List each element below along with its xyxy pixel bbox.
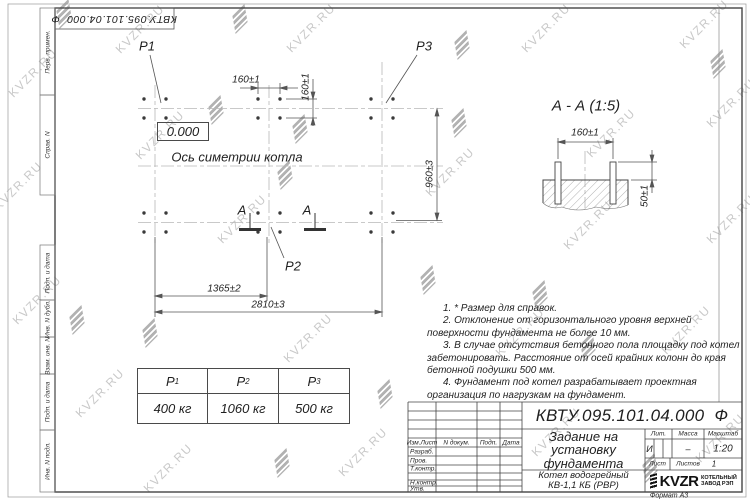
tb-document-title-text: Задание на установку фундамента xyxy=(536,430,631,471)
margin-label-podp-data-1: Подп. и дата xyxy=(44,252,51,293)
load-table-header-p1: P1 xyxy=(138,369,208,394)
level-mark-box: 0.000 xyxy=(157,122,209,141)
p3-symbol: P xyxy=(307,374,316,389)
dim-bolt-spacing-h: 160±1 xyxy=(232,75,260,86)
tb-mass-value: – xyxy=(685,444,690,454)
load-table-value-p3: 500 кг xyxy=(279,394,349,423)
margin-label-inv-dubl: Инв. N дубл. xyxy=(44,300,51,338)
dim-total-length: 2810±3 xyxy=(251,300,284,311)
load-table-value-p1: 400 кг xyxy=(138,394,208,423)
dim-foundation-width: 960±3 xyxy=(425,160,436,188)
tb-lit-label: Лит. xyxy=(651,431,666,438)
title-block-designation: КВТУ.095.101.04.000 Ф xyxy=(536,406,729,426)
format-label: Формат А3 xyxy=(650,493,688,500)
p1-sub: 1 xyxy=(175,377,179,386)
dim-left-to-center: 1365±2 xyxy=(207,284,240,295)
p2-sub: 2 xyxy=(245,377,249,386)
tb-scale-value: 1:20 xyxy=(713,443,732,454)
tb-product-name: Котел водогрейный КВ-1,1 КБ (РВР) xyxy=(522,470,645,492)
load-point-p2-label: P2 xyxy=(285,259,301,274)
load-point-p1-label: P1 xyxy=(139,39,155,54)
p3-sub: 3 xyxy=(316,377,320,386)
section-view-block xyxy=(543,162,628,210)
section-mark-letter-right: А xyxy=(303,203,312,218)
section-view-title: А - А (1:5) xyxy=(552,98,620,115)
kvzr-caption-line2: ЗАВОД РЭП xyxy=(701,481,737,487)
p2-symbol: P xyxy=(236,374,245,389)
tb-document-title: Задание на установку фундамента xyxy=(522,430,645,470)
load-table: P1 P2 P3 400 кг 1060 кг 500 кг xyxy=(137,368,350,424)
note-3: 3. В случае отсутствия бетонного пола пл… xyxy=(427,340,741,377)
section-cut-marks xyxy=(239,213,326,230)
tb-col-n-dokum: N докум. xyxy=(443,439,469,446)
anchor-bolt-dots xyxy=(142,97,394,233)
tb-sheet-label: Лист xyxy=(649,461,666,468)
tb-sheets-value: 1 xyxy=(712,460,716,469)
tb-product-name-text: Котел водогрейный КВ-1,1 КБ (РВР) xyxy=(531,471,636,491)
tb-col-podp: Подп. xyxy=(480,439,497,446)
section-mark-letter-left: А xyxy=(238,203,247,218)
tb-row-utv: Утв. xyxy=(410,486,425,493)
margin-label-podp-data-2: Подп. и дата xyxy=(44,382,51,423)
tb-scale-label: Масштаб xyxy=(708,431,738,438)
note-1: 1. * Размер для справок. xyxy=(427,303,741,315)
kvzr-logo-caption: КОТЕЛЬНЫЙ ЗАВОД РЭП xyxy=(701,475,737,487)
notes-block: 1. * Размер для справок. 2. Отклонение о… xyxy=(427,303,741,402)
tb-sheets-label: Листов xyxy=(676,461,700,468)
margin-label-vzam-inv: Взам. инв. N xyxy=(44,337,51,375)
section-dim-bolt-spacing: 160±1 xyxy=(571,128,599,139)
tb-mass-label: Масса xyxy=(678,431,697,438)
load-table-header-p2: P2 xyxy=(208,369,279,394)
note-4: 4. Фундамент под котел разрабатывает про… xyxy=(427,377,741,402)
tb-col-izm-list: Изм.Лист xyxy=(407,439,438,446)
tb-col-data: Дата xyxy=(502,439,519,446)
note-2: 2. Отклонение от горизонтального уровня … xyxy=(427,315,741,340)
section-dim-bolt-height: 50±1 xyxy=(640,185,651,207)
kvzr-logo-icon xyxy=(650,473,657,490)
tb-lit-value: И xyxy=(646,444,652,454)
margin-label-perv-primen: Перв. примен. xyxy=(44,30,51,73)
load-table-header-p3: P3 xyxy=(279,369,349,394)
margin-label-sprav-n: Справ. N xyxy=(44,131,51,158)
kvzr-logo-text: KVZR xyxy=(660,473,699,490)
drawing-sheet: KVZR.RUKVZR.RUKVZR.RUKVZR.RUKVZR.RUKVZR.… xyxy=(0,0,750,500)
tb-row-tkontr: Т.контр. xyxy=(410,466,436,473)
level-mark-value: 0.000 xyxy=(167,124,200,139)
load-table-value-p2: 1060 кг xyxy=(208,394,279,423)
tb-manufacturer-logo: KVZR КОТЕЛЬНЫЙ ЗАВОД РЭП xyxy=(645,470,742,492)
tb-row-razrab: Разраб. xyxy=(410,448,434,455)
load-point-p3-label: P3 xyxy=(416,39,432,54)
top-inverted-stamp: КВТУ.095.101.04.000 Ф xyxy=(51,13,177,25)
boiler-symmetry-axis-label: Ось симетрии котла xyxy=(171,149,302,164)
margin-label-inv-podl: Инв. N подл. xyxy=(44,442,51,480)
tb-row-prov: Пров. xyxy=(410,457,427,464)
p1-symbol: P xyxy=(166,374,175,389)
dim-bolt-spacing-v: 160±1 xyxy=(301,73,312,101)
